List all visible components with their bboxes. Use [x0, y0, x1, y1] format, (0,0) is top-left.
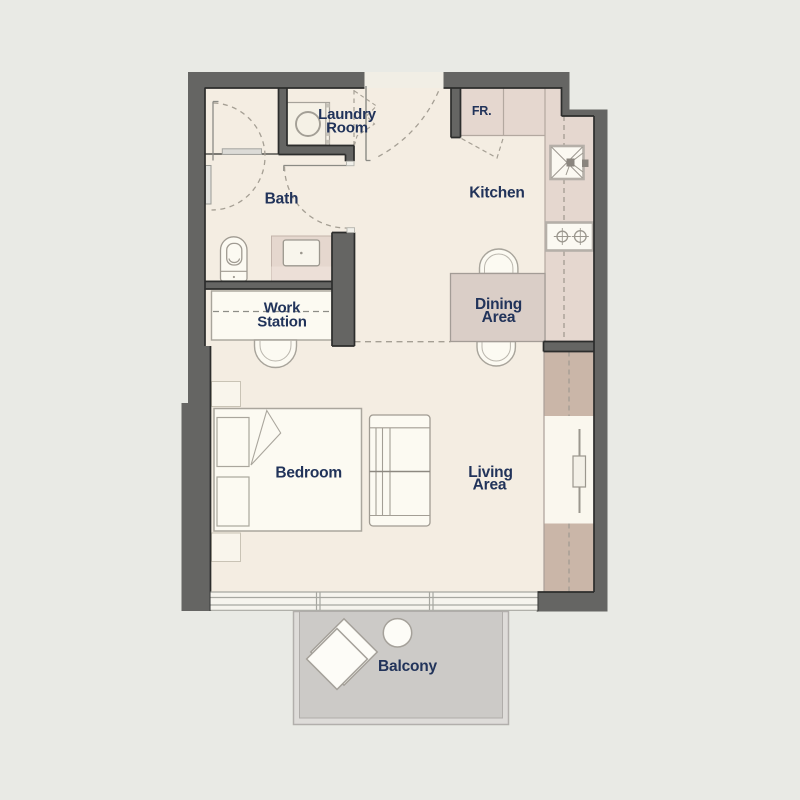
- svg-text:Balcony: Balcony: [378, 658, 437, 675]
- svg-text:Room: Room: [326, 120, 368, 137]
- svg-text:Bath: Bath: [265, 191, 299, 208]
- svg-text:Area: Area: [473, 477, 507, 494]
- svg-text:Kitchen: Kitchen: [469, 185, 524, 202]
- svg-text:Station: Station: [257, 314, 306, 331]
- svg-text:FR.: FR.: [472, 104, 492, 118]
- svg-text:Area: Area: [482, 309, 516, 326]
- svg-text:Bedroom: Bedroom: [275, 465, 342, 482]
